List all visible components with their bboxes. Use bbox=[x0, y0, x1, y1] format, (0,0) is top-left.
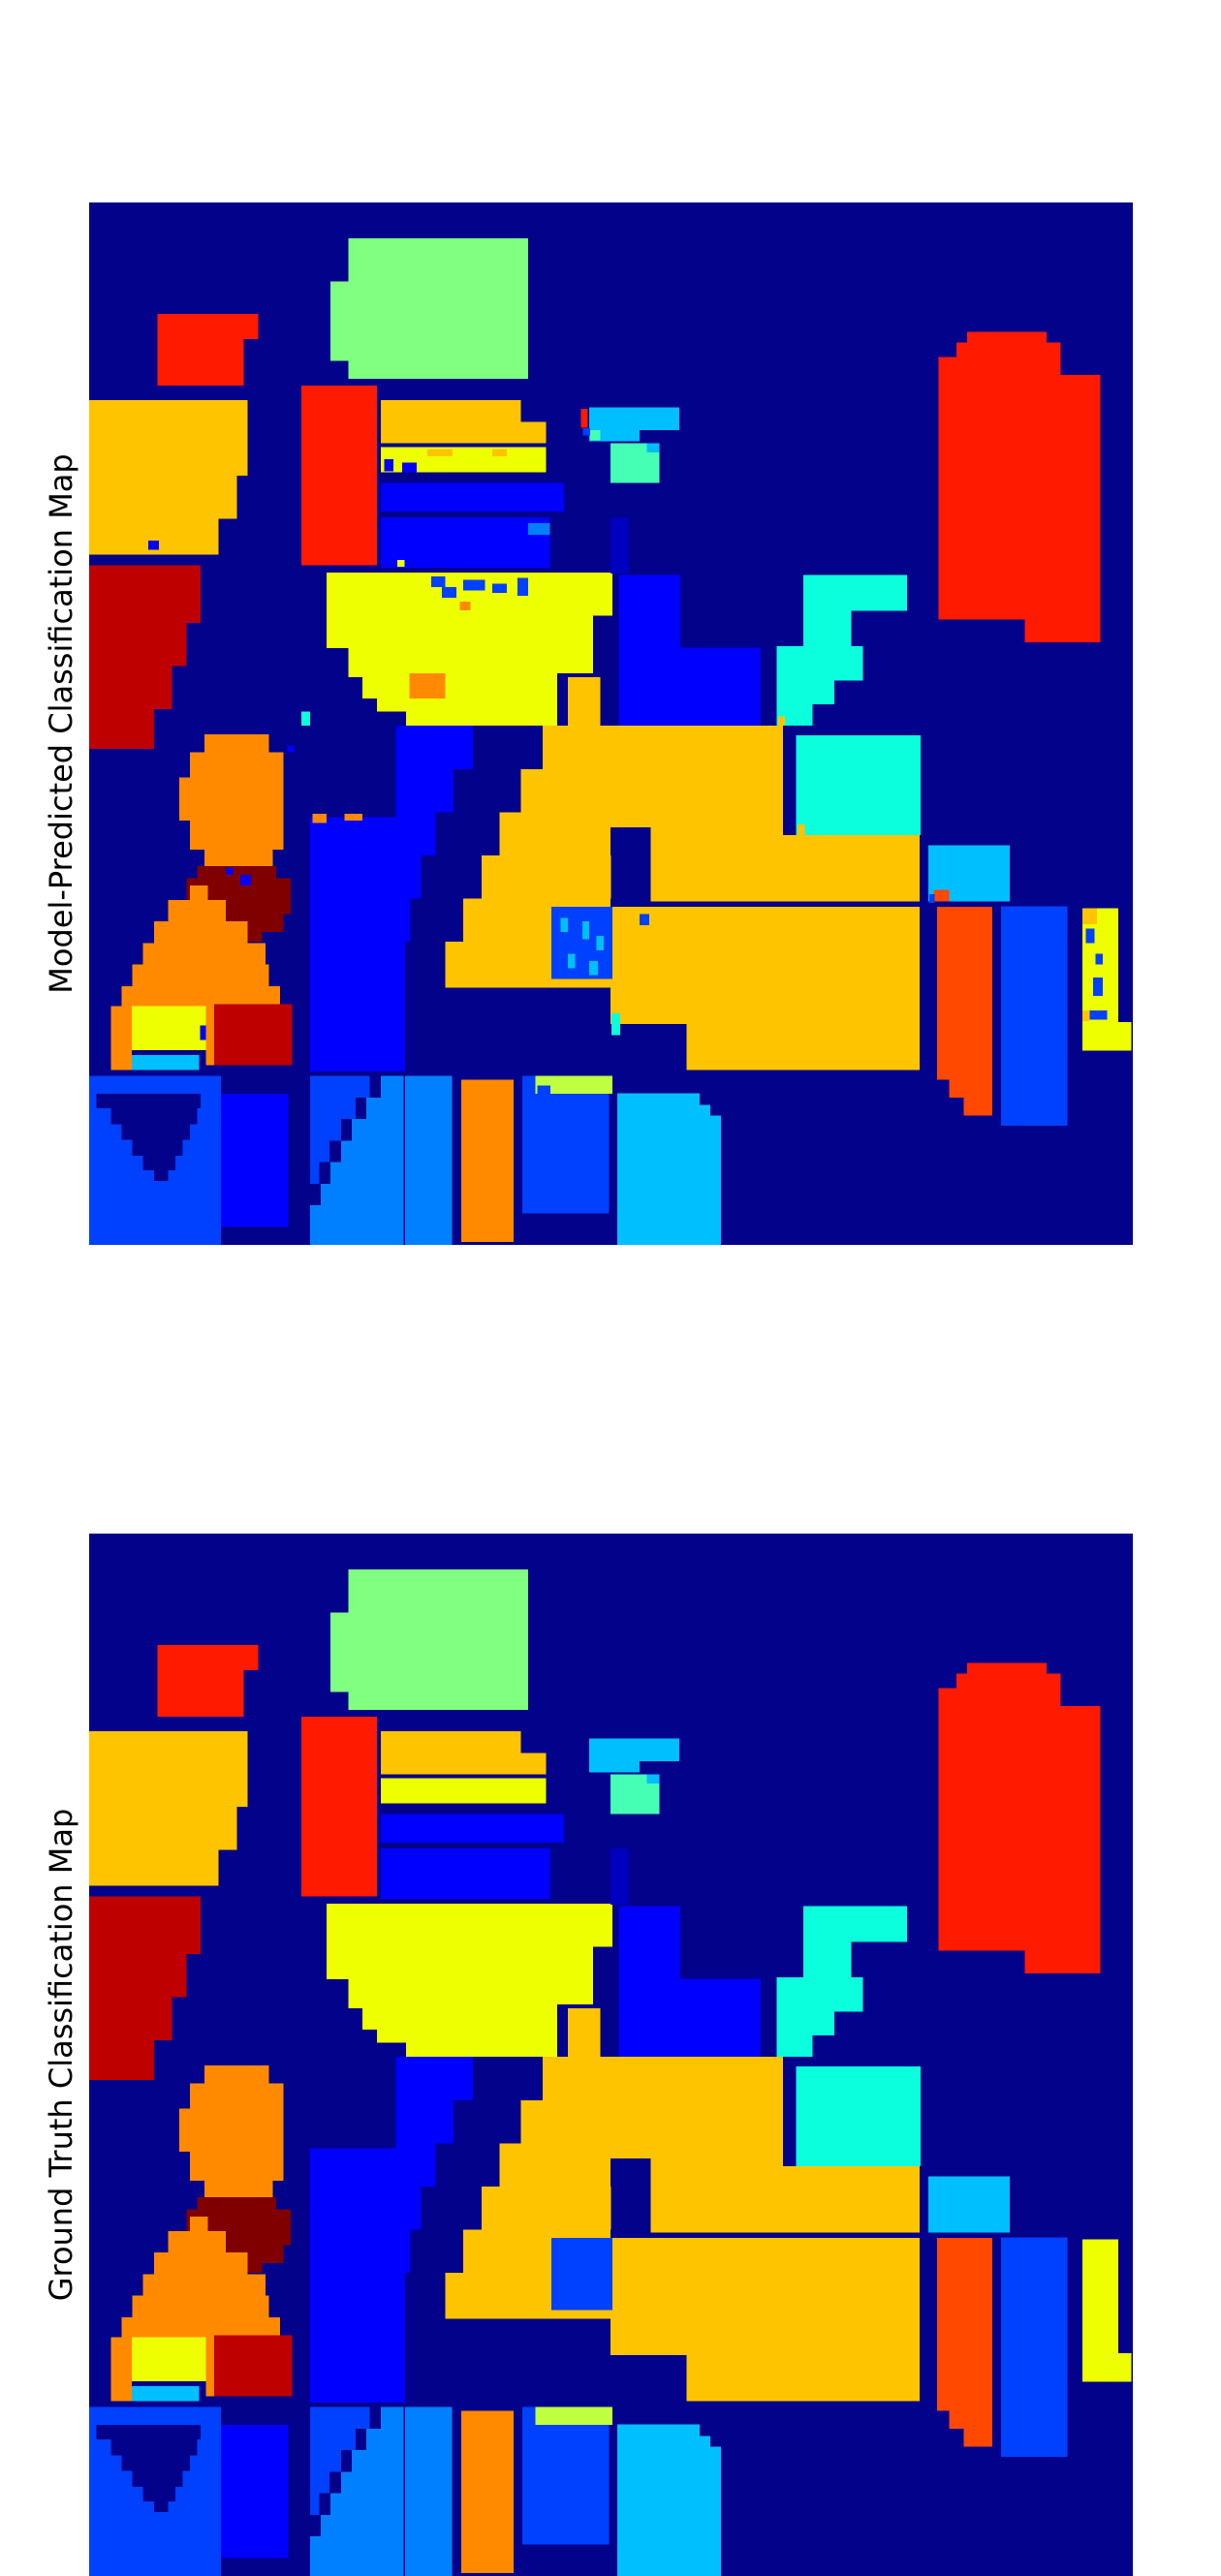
ground-truth-map-ylabel: Ground Truth Classification Map bbox=[46, 1809, 77, 2302]
predicted-map-ylabel: Model-Predicted Classification Map bbox=[46, 453, 77, 993]
ground-truth-map-canvas bbox=[89, 1534, 1133, 2576]
predicted-map-canvas bbox=[89, 202, 1133, 1245]
figure: Model-Predicted Classification Map Groun… bbox=[0, 0, 1221, 2317]
